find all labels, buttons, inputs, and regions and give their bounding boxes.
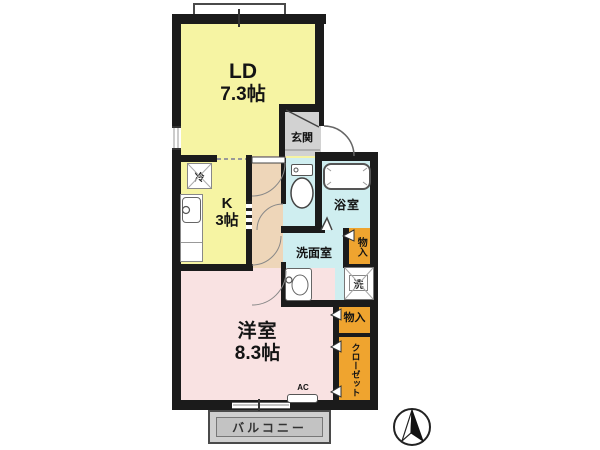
wall-right-upper xyxy=(315,14,324,112)
wall-washroom-bottom xyxy=(281,300,378,307)
storage-lower-label: 物入 xyxy=(337,309,372,327)
room-ld-label: LD 7.3帖 xyxy=(182,52,304,114)
washroom-label: 洗面室 xyxy=(287,246,341,262)
wall-toilet-bath xyxy=(315,158,322,230)
ld-name: LD xyxy=(229,60,257,84)
wall-ld-k-partial xyxy=(175,155,217,162)
ld-size: 7.3帖 xyxy=(220,84,265,106)
refrigerator-space: 冷 xyxy=(187,163,212,189)
bathtub xyxy=(323,163,371,190)
washer-label: 洗 xyxy=(354,276,364,291)
wall-left-upper xyxy=(172,14,181,126)
ac-unit xyxy=(287,394,318,403)
wall-top xyxy=(172,14,326,24)
wall-toilet-left xyxy=(281,158,286,204)
hallway-area xyxy=(246,156,286,271)
window-left-wall xyxy=(172,126,181,150)
window-balcony-door xyxy=(232,402,290,409)
washer-label-box: 洗 xyxy=(349,275,368,291)
kitchen-sink xyxy=(182,197,201,223)
north-arrow-icon xyxy=(394,409,430,445)
wall-k-bottom xyxy=(175,264,253,271)
balcony: バルコニー xyxy=(208,410,331,444)
closet-label: クローゼット xyxy=(340,337,370,403)
storage-upper-label: 物入 xyxy=(350,229,371,265)
balcony-label: バルコニー xyxy=(232,419,307,436)
balcony-inner: バルコニー xyxy=(216,417,323,437)
wall-bath-top xyxy=(315,152,378,161)
refrigerator-label: 冷 xyxy=(195,169,205,184)
kitchen-size: 3帖 xyxy=(215,212,238,229)
western-name: 洋室 xyxy=(237,321,277,343)
entrance-label: 玄関 xyxy=(285,131,319,145)
room-western-label: 洋室 8.3帖 xyxy=(180,312,335,374)
floor-plan: バルコニー 冷 洗 AC LD 7.3帖 xyxy=(0,0,600,450)
washbasin xyxy=(285,268,312,301)
ac-label: AC xyxy=(288,383,318,393)
wall-entrance-right-stub xyxy=(319,112,324,126)
toilet-tank xyxy=(291,164,313,176)
kitchen-name: K xyxy=(222,195,233,212)
kitchen-counter-divider xyxy=(181,242,202,243)
bathroom-label: 浴室 xyxy=(322,198,372,214)
room-kitchen-label: K 3帖 xyxy=(203,190,251,234)
wall-washroom-right xyxy=(343,228,349,268)
western-size: 8.3帖 xyxy=(235,343,280,365)
